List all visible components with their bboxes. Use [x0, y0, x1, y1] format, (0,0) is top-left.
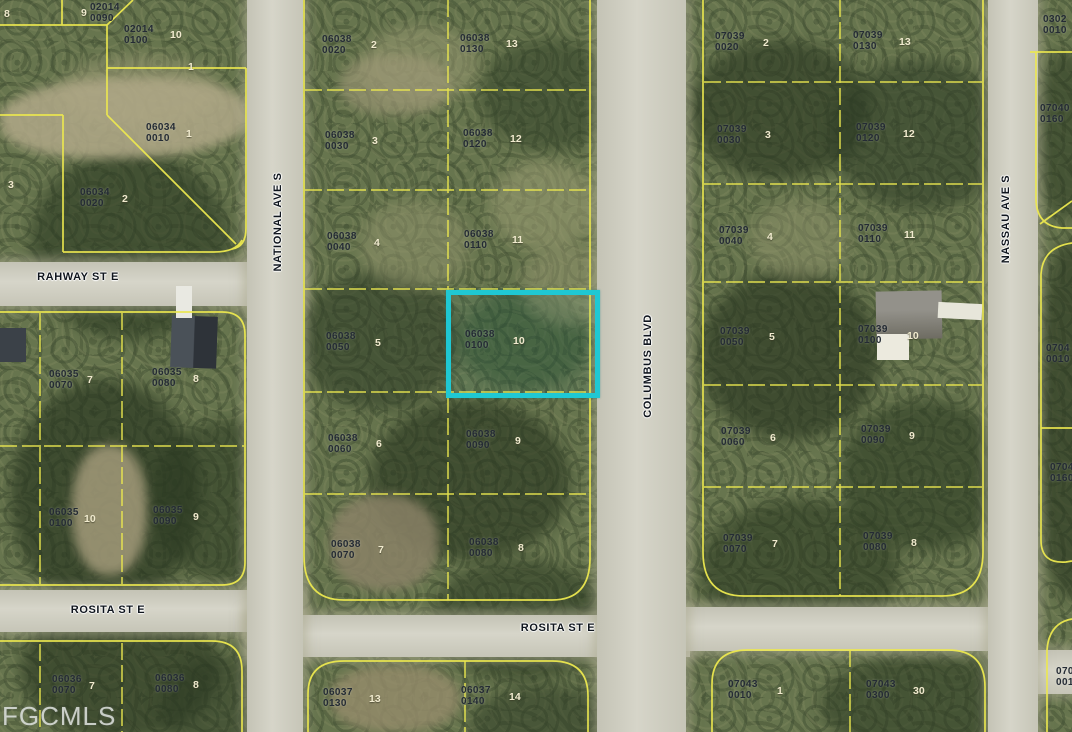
- parcel-id-label: 07039 0030: [717, 124, 747, 146]
- lot-number: 30: [913, 685, 925, 697]
- lot-number: 11: [904, 229, 915, 241]
- lot-number: 9: [81, 7, 87, 19]
- lot-number: 1: [188, 61, 194, 73]
- parcel-id-label: 02014 0090: [90, 2, 120, 24]
- parcel-id-label: 06038 0060: [328, 433, 358, 455]
- street-name-label: NATIONAL AVE S: [272, 172, 284, 271]
- lot-number: 2: [122, 193, 128, 205]
- lot-number: 10: [513, 335, 525, 347]
- parcel-id-label: 06037 0130: [323, 687, 353, 709]
- parcel-id-label: 06038 0080: [469, 537, 499, 559]
- street-name-label: ROSITA ST E: [521, 622, 595, 634]
- lot-number: 9: [193, 511, 199, 523]
- parcel-id-label: 06036 0070: [52, 674, 82, 696]
- lot-number: 6: [376, 438, 382, 450]
- parcel-id-label: 07039 0040: [719, 225, 749, 247]
- parcel-id-label: 07043 0300: [866, 679, 896, 701]
- parcel-id-label: 06035 0100: [49, 507, 79, 529]
- lot-number: 13: [506, 38, 518, 50]
- lot-number: 4: [767, 231, 773, 243]
- parcel-id-label: 06038 0090: [466, 429, 496, 451]
- lot-number: 3: [765, 129, 771, 141]
- parcel-id-label: 07039 0050: [720, 326, 750, 348]
- parcel-id-label: 06038 0130: [460, 33, 490, 55]
- lot-number: 8: [193, 373, 199, 385]
- parcel-id-label: 06038 0030: [325, 130, 355, 152]
- lot-number: 7: [89, 680, 95, 692]
- parcel-id-label: 06034 0010: [146, 122, 176, 144]
- lot-number: 8: [4, 8, 10, 20]
- lot-number: 4: [374, 237, 380, 249]
- parcel-id-label: 07039 0020: [715, 31, 745, 53]
- lot-number: 1: [777, 685, 783, 697]
- lot-number: 8: [911, 537, 917, 549]
- lot-number: 10: [170, 29, 182, 41]
- fgcmls-watermark: FGCMLS: [2, 701, 116, 732]
- street-name-label: COLUMBUS BLVD: [642, 314, 654, 418]
- street-name-label: NASSAU AVE S: [1000, 175, 1012, 264]
- lot-number: 7: [378, 544, 384, 556]
- parcel-id-label: 06035 0080: [152, 367, 182, 389]
- lot-number: 5: [769, 331, 775, 343]
- lot-number: 13: [899, 36, 911, 48]
- lot-number: 2: [763, 37, 769, 49]
- lot-number: 3: [8, 179, 14, 191]
- street-name-label: ROSITA ST E: [71, 604, 145, 616]
- lot-number: 10: [907, 330, 919, 342]
- parcel-id-label: 07039 0120: [856, 122, 886, 144]
- parcel-id-label: 07039 0060: [721, 426, 751, 448]
- parcel-id-label: 02014 0100: [124, 24, 154, 46]
- parcel-id-label: 06034 0020: [80, 187, 110, 209]
- lot-number: 8: [518, 542, 524, 554]
- parcel-id-label: 07039 0130: [853, 30, 883, 52]
- lot-number: 7: [87, 374, 93, 386]
- lot-number: 13: [369, 693, 381, 705]
- lot-number: 12: [510, 133, 522, 145]
- aerial-parcel-map[interactable]: 02014 0090902014 01001006034 0010106034 …: [0, 0, 1072, 732]
- parcel-id-label: 0302 0010: [1043, 14, 1067, 36]
- lot-number: 9: [909, 430, 915, 442]
- parcel-id-label: 07039 0070: [723, 533, 753, 555]
- parcel-id-label: 07039 0100: [858, 324, 888, 346]
- parcel-id-label: 07043 0010: [728, 679, 758, 701]
- parcel-id-label: 0704 0160: [1050, 462, 1072, 484]
- lot-number: 5: [375, 337, 381, 349]
- street-name-label: RAHWAY ST E: [37, 271, 119, 283]
- lot-number: 7: [772, 538, 778, 550]
- lot-number: 6: [770, 432, 776, 444]
- parcel-id-label: 07039 0080: [863, 531, 893, 553]
- lot-number: 11: [512, 234, 523, 246]
- lot-number: 3: [372, 135, 378, 147]
- parcel-id-label: 07039 0110: [858, 223, 888, 245]
- parcel-id-label: 06037 0140: [461, 685, 491, 707]
- parcel-id-label: 06038 0050: [326, 331, 356, 353]
- lot-number: 2: [371, 39, 377, 51]
- parcel-id-label: 06038 0020: [322, 34, 352, 56]
- parcel-id-label: 07040 0160: [1040, 103, 1070, 125]
- lot-number: 1: [186, 128, 192, 140]
- parcel-id-label: 0704 0010: [1046, 343, 1070, 365]
- parcel-id-label: 06038 0120: [463, 128, 493, 150]
- parcel-id-label: 06038 0110: [464, 229, 494, 251]
- parcel-id-label: 06038 0070: [331, 539, 361, 561]
- parcel-id-label: 07039 0090: [861, 424, 891, 446]
- lot-number: 8: [193, 679, 199, 691]
- parcel-id-label: 06035 0090: [153, 505, 183, 527]
- lot-number: 12: [903, 128, 915, 140]
- parcel-id-label: 06038 0100: [465, 329, 495, 351]
- parcel-id-label: 070 001: [1056, 666, 1072, 688]
- parcel-id-label: 06038 0040: [327, 231, 357, 253]
- parcel-id-label: 06036 0080: [155, 673, 185, 695]
- lot-number: 9: [515, 435, 521, 447]
- parcel-id-label: 06035 0070: [49, 369, 79, 391]
- lot-number: 14: [509, 691, 521, 703]
- lot-number: 10: [84, 513, 96, 525]
